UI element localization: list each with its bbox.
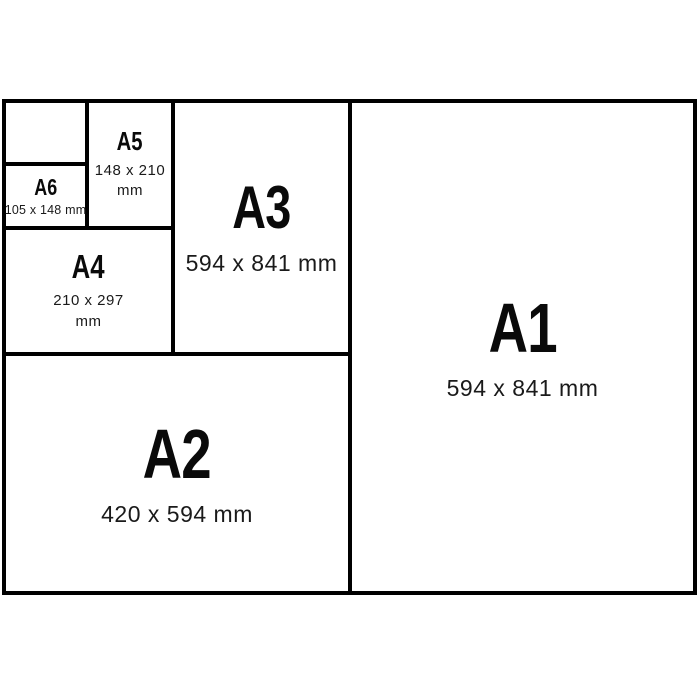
sheet-a3: A3 594 x 841 mm	[175, 103, 348, 352]
sheet-a3-dimensions: 594 x 841 mm	[186, 250, 338, 277]
sheet-a2-label: A2	[143, 419, 211, 489]
paper-size-diagram: A6 105 x 148 mm A5 148 x 210 mm A4 210 x…	[2, 99, 697, 595]
sheet-a4: A4 210 x 297 mm	[6, 230, 171, 352]
sheet-a6: A6 105 x 148 mm	[6, 166, 85, 226]
sheet-a4-dimensions: 210 x 297 mm	[49, 291, 129, 332]
sheet-blank	[6, 103, 85, 162]
sheet-a3-label: A3	[232, 178, 290, 238]
sheet-a4-label: A4	[72, 250, 105, 283]
sheet-a2: A2 420 x 594 mm	[6, 356, 348, 591]
sheet-a6-dimensions: 105 x 148 mm	[5, 203, 87, 217]
sheet-a1-dimensions: 594 x 841 mm	[447, 375, 599, 402]
sheet-a6-label: A6	[34, 176, 57, 199]
sheet-a5-dimensions: 148 x 210 mm	[94, 161, 166, 202]
sheet-a1: A1 594 x 841 mm	[352, 103, 693, 591]
sheet-a1-label: A1	[488, 293, 556, 363]
sheet-a5-label: A5	[117, 128, 143, 154]
sheet-a2-dimensions: 420 x 594 mm	[101, 501, 253, 528]
sheet-a5: A5 148 x 210 mm	[89, 103, 171, 226]
